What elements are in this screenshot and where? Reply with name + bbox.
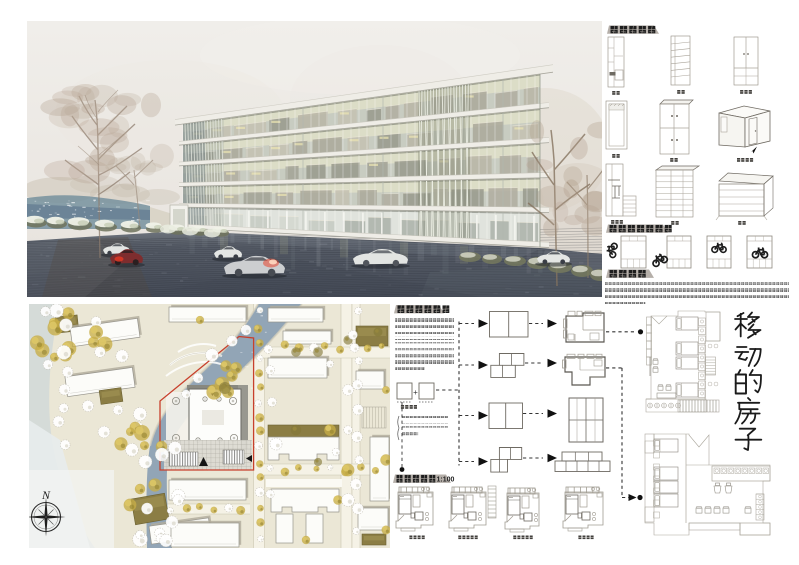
svg-text:1:100: 1:100 [437, 477, 455, 484]
svg-text:+: + [413, 388, 418, 397]
svg-text:N: N [41, 488, 51, 502]
